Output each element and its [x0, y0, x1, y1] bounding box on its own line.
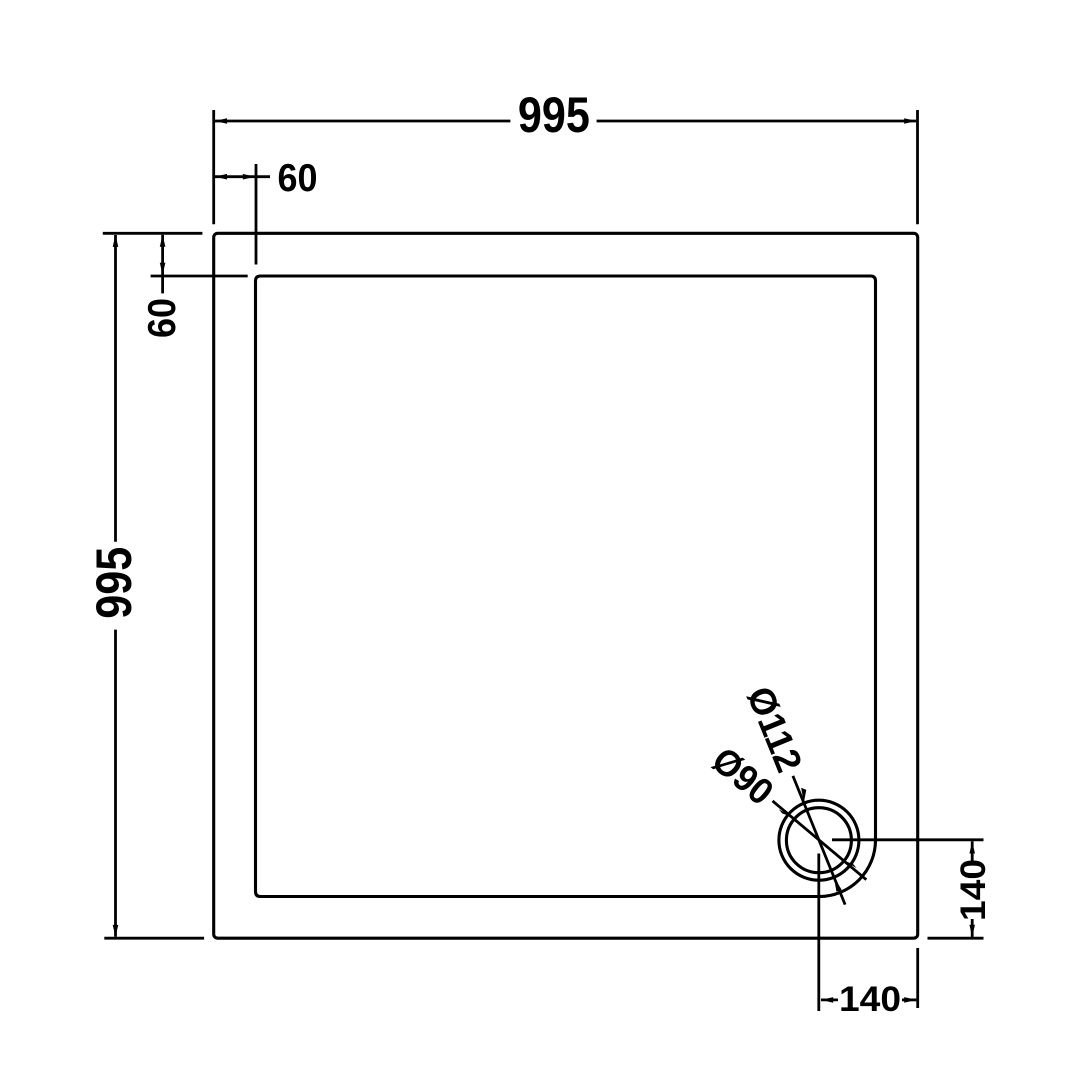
svg-text:60: 60 [141, 298, 184, 338]
svg-text:140: 140 [839, 979, 901, 1019]
svg-text:995: 995 [86, 547, 142, 619]
svg-text:140: 140 [953, 859, 993, 921]
svg-text:995: 995 [518, 87, 590, 143]
svg-text:60: 60 [278, 157, 318, 200]
